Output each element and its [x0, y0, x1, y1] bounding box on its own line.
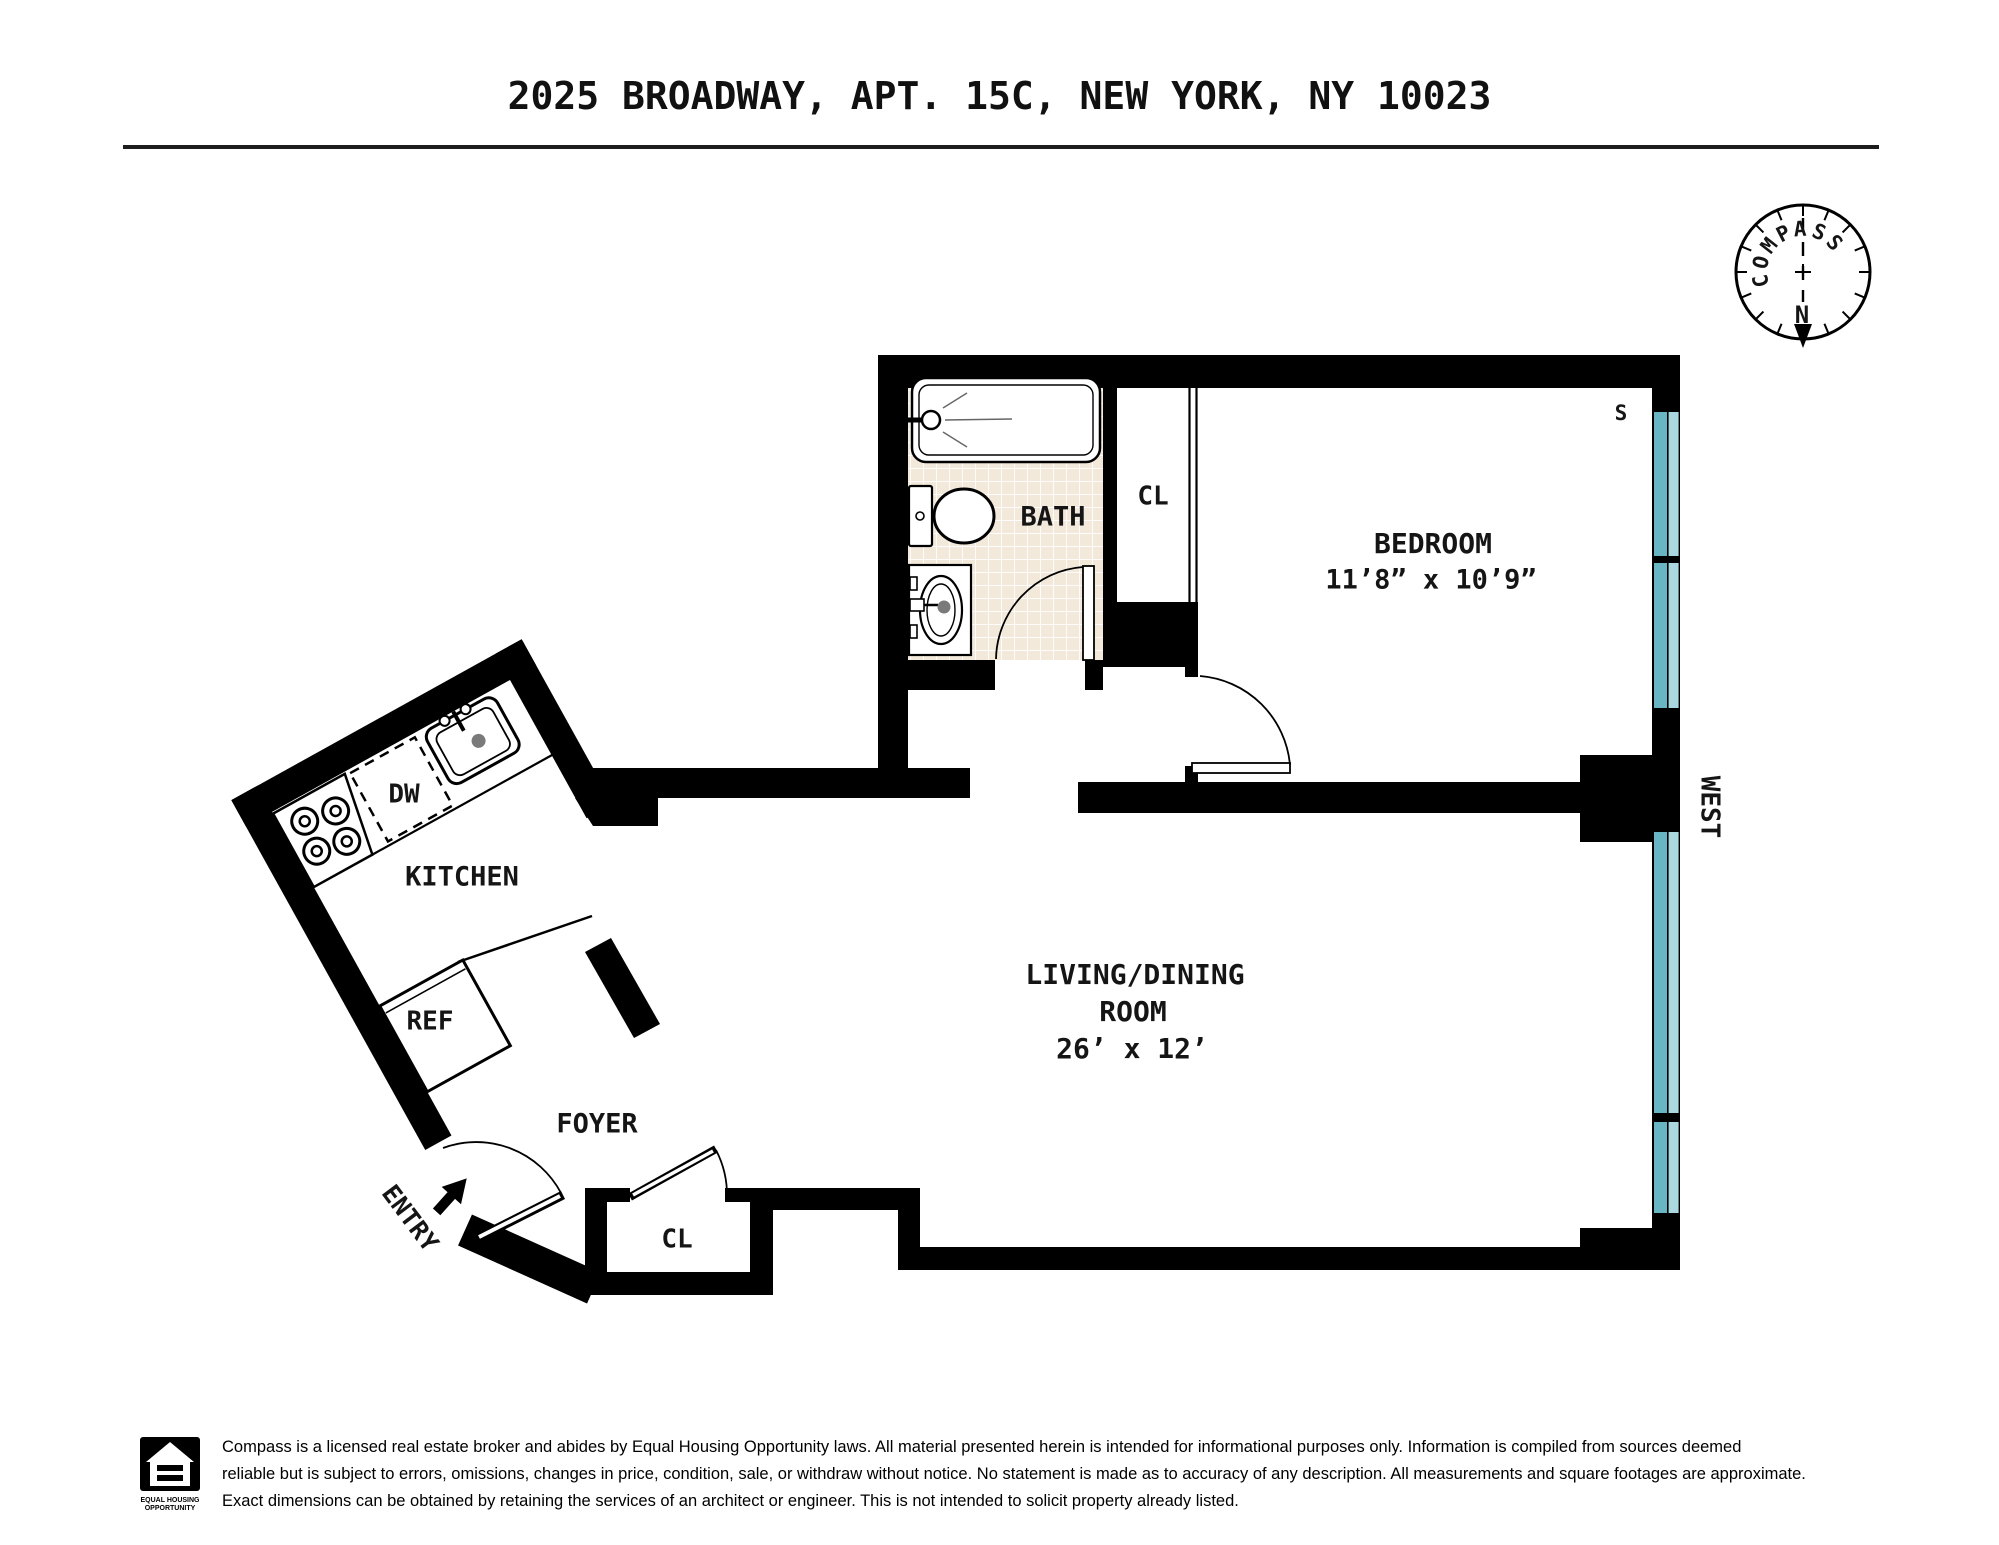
- wall-segment: [585, 938, 660, 1038]
- label-living-dims: 26’ x 12’: [1056, 1032, 1208, 1065]
- label-foyer-closet: CL: [661, 1225, 692, 1255]
- foyer-closet-door-leaf-core: [633, 1151, 713, 1195]
- bath-door-leaf: [1083, 566, 1094, 660]
- wall-segment: [725, 1188, 752, 1202]
- wall-segment: [585, 1272, 773, 1295]
- eho-label-line2: OPPORTUNITY: [130, 1505, 210, 1513]
- eho-label-line1: EQUAL HOUSING: [130, 1497, 210, 1505]
- label-foyer: FOYER: [556, 1109, 638, 1140]
- window: [1654, 412, 1679, 556]
- equal-housing-logo: EQUAL HOUSING OPPORTUNITY: [130, 1436, 210, 1513]
- label-bath: BATH: [1020, 502, 1085, 533]
- wall-segment: [592, 768, 970, 798]
- compass-letter: O: [1748, 253, 1774, 271]
- compass-north-label: N: [1795, 301, 1809, 329]
- sliding-door: [1190, 388, 1197, 602]
- label-refrigerator: REF: [407, 1007, 454, 1037]
- wall-segment: [1652, 1213, 1680, 1270]
- disclaimer-line1: Compass is a licensed real estate broker…: [222, 1434, 1912, 1461]
- wall-segment: [750, 1188, 773, 1295]
- label-dishwasher: DW: [388, 780, 420, 810]
- disclaimer-line3: Exact dimensions can be obtained by reta…: [222, 1488, 1912, 1515]
- wall-segment: [1185, 667, 1198, 677]
- window: [1654, 832, 1679, 1113]
- counter-peninsula: [458, 916, 592, 962]
- kitchen-wing: [231, 639, 715, 1150]
- window: [1654, 1122, 1679, 1213]
- entry-door-leaf-core: [479, 1196, 560, 1237]
- wall-segment: [1103, 602, 1198, 667]
- label-bedroom: BEDROOM: [1374, 527, 1492, 560]
- compass-center-cross: [1795, 264, 1811, 280]
- compass-letter: A: [1793, 217, 1808, 242]
- wall-segment: [878, 660, 995, 690]
- window: [1654, 563, 1679, 708]
- label-kitchen: KITCHEN: [405, 862, 519, 893]
- disclaimer-line2: reliable but is subject to errors, omiss…: [222, 1461, 1912, 1488]
- toilet: [909, 486, 994, 546]
- wall-segment: [1078, 782, 1580, 813]
- wall-segment: [878, 388, 908, 798]
- bedroom-door-leaf: [1192, 763, 1290, 773]
- disclaimer: Compass is a licensed real estate broker…: [222, 1434, 1912, 1515]
- label-living-line1: LIVING/DINING: [1025, 958, 1244, 991]
- wall-segment: [898, 1210, 920, 1270]
- label-entry: ENTRY: [376, 1179, 444, 1257]
- bedroom-door-arc: [1200, 676, 1290, 765]
- wall-segment: [1085, 660, 1103, 690]
- label-bath-closet: CL: [1137, 482, 1168, 512]
- wall-segment: [1580, 1228, 1652, 1247]
- floor-plan: BATH CL S BEDROOM 11’8” x 10’9” WEST KIT…: [0, 0, 1999, 1545]
- wall-segment: [920, 1247, 1680, 1270]
- compass-letter: C: [1748, 272, 1774, 289]
- equal-housing-icon: [139, 1436, 201, 1492]
- label-west: WEST: [1695, 776, 1725, 839]
- label-bedroom-dims: 11’8” x 10’9”: [1325, 565, 1536, 596]
- compass: C O M P A S S N: [1728, 194, 1878, 359]
- vanity-sink: [909, 565, 971, 655]
- wall-segment: [752, 1188, 920, 1210]
- label-living-line2: ROOM: [1099, 995, 1166, 1028]
- wall-segment: [598, 1188, 630, 1202]
- label-south-marker: S: [1615, 401, 1628, 425]
- entry-arrow-icon: [427, 1170, 476, 1221]
- wall-segment: [1103, 388, 1117, 602]
- wall-segment: [1580, 755, 1652, 842]
